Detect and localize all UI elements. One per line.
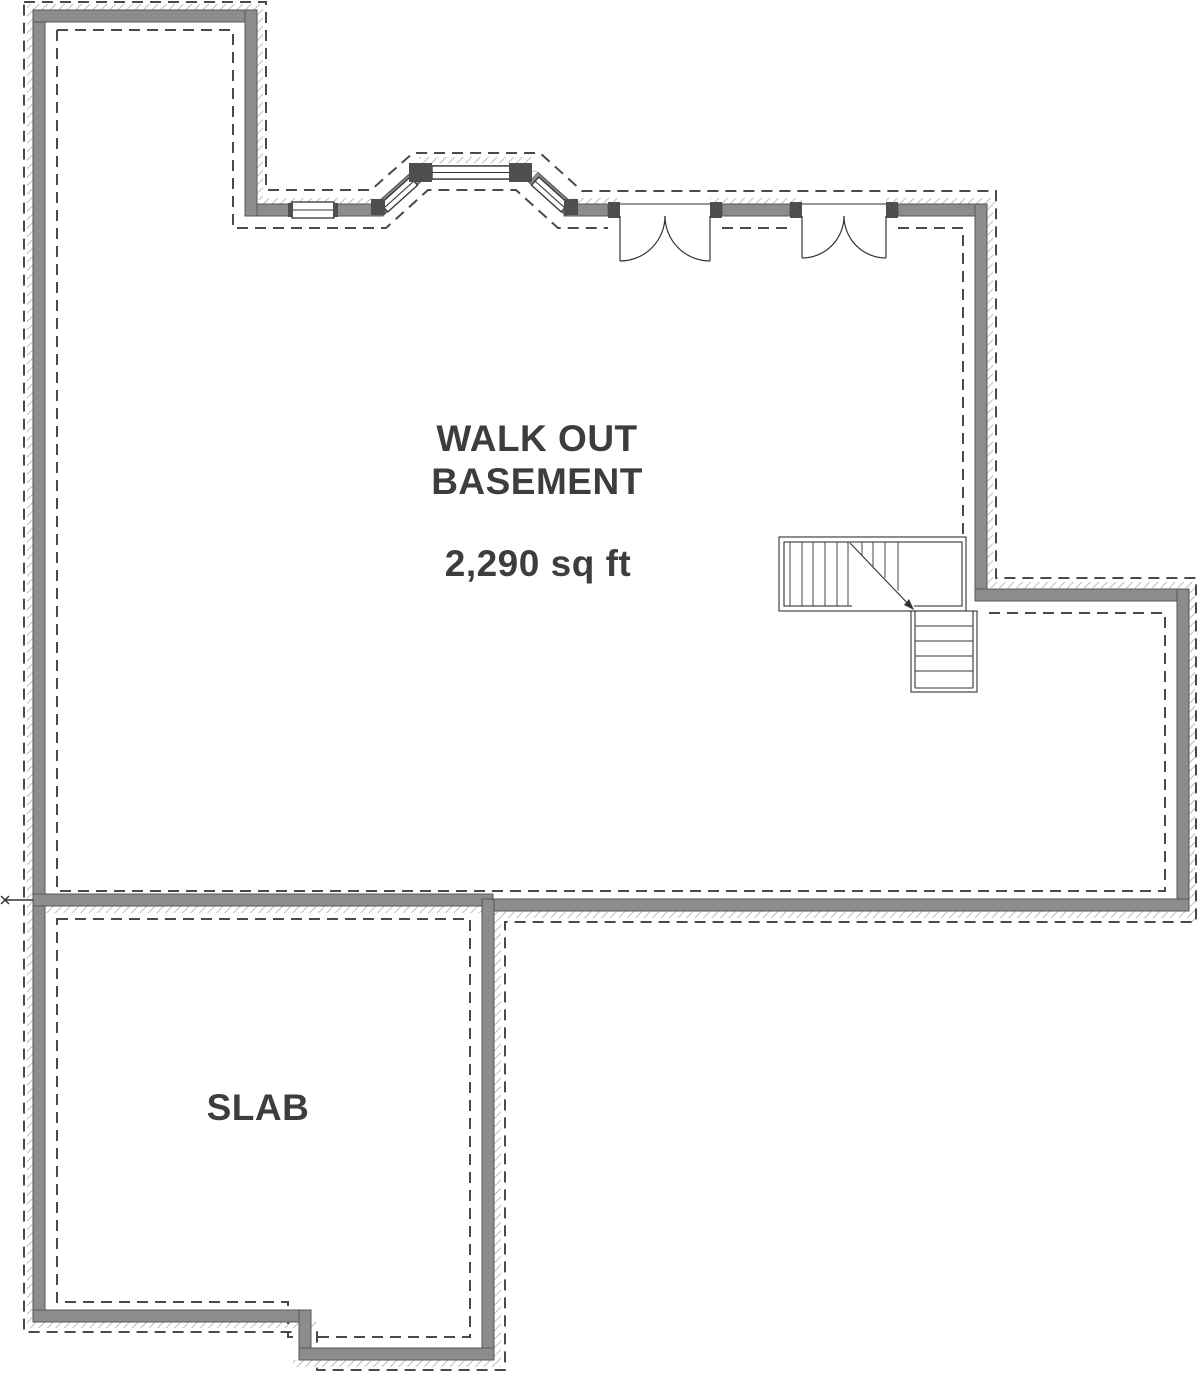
floor-plan-drawing: WALK OUT BASEMENT 2,290 sq ft SLAB <box>0 0 1200 1379</box>
stair-lower-run <box>911 611 977 692</box>
slab-label: SLAB <box>207 1087 310 1128</box>
door-swing-arc <box>620 216 665 261</box>
door-swing-arc <box>665 216 710 261</box>
bay-end-post <box>371 199 385 215</box>
door-jamb <box>790 202 802 218</box>
staircase <box>779 537 977 692</box>
basement-label-line2: BASEMENT <box>431 461 643 502</box>
basement-label-line1: WALK OUT <box>436 418 637 459</box>
double-door-right <box>790 202 898 258</box>
bay-corner-post <box>509 163 532 182</box>
door-jamb <box>886 202 898 218</box>
door-swing-arc <box>844 216 886 258</box>
double-door-left <box>608 202 722 261</box>
basement-window <box>288 202 338 218</box>
door-swing-arc <box>802 216 844 258</box>
inner-dashed-line <box>57 30 1165 1337</box>
bay-center-window <box>432 166 510 179</box>
bay-corner-post <box>409 163 432 182</box>
door-jamb <box>710 202 722 218</box>
basement-area-label: 2,290 sq ft <box>445 543 631 584</box>
bay-end-post <box>564 199 578 215</box>
floor-plan-page: WALK OUT BASEMENT 2,290 sq ft SLAB <box>0 0 1200 1379</box>
door-jamb <box>608 202 620 218</box>
